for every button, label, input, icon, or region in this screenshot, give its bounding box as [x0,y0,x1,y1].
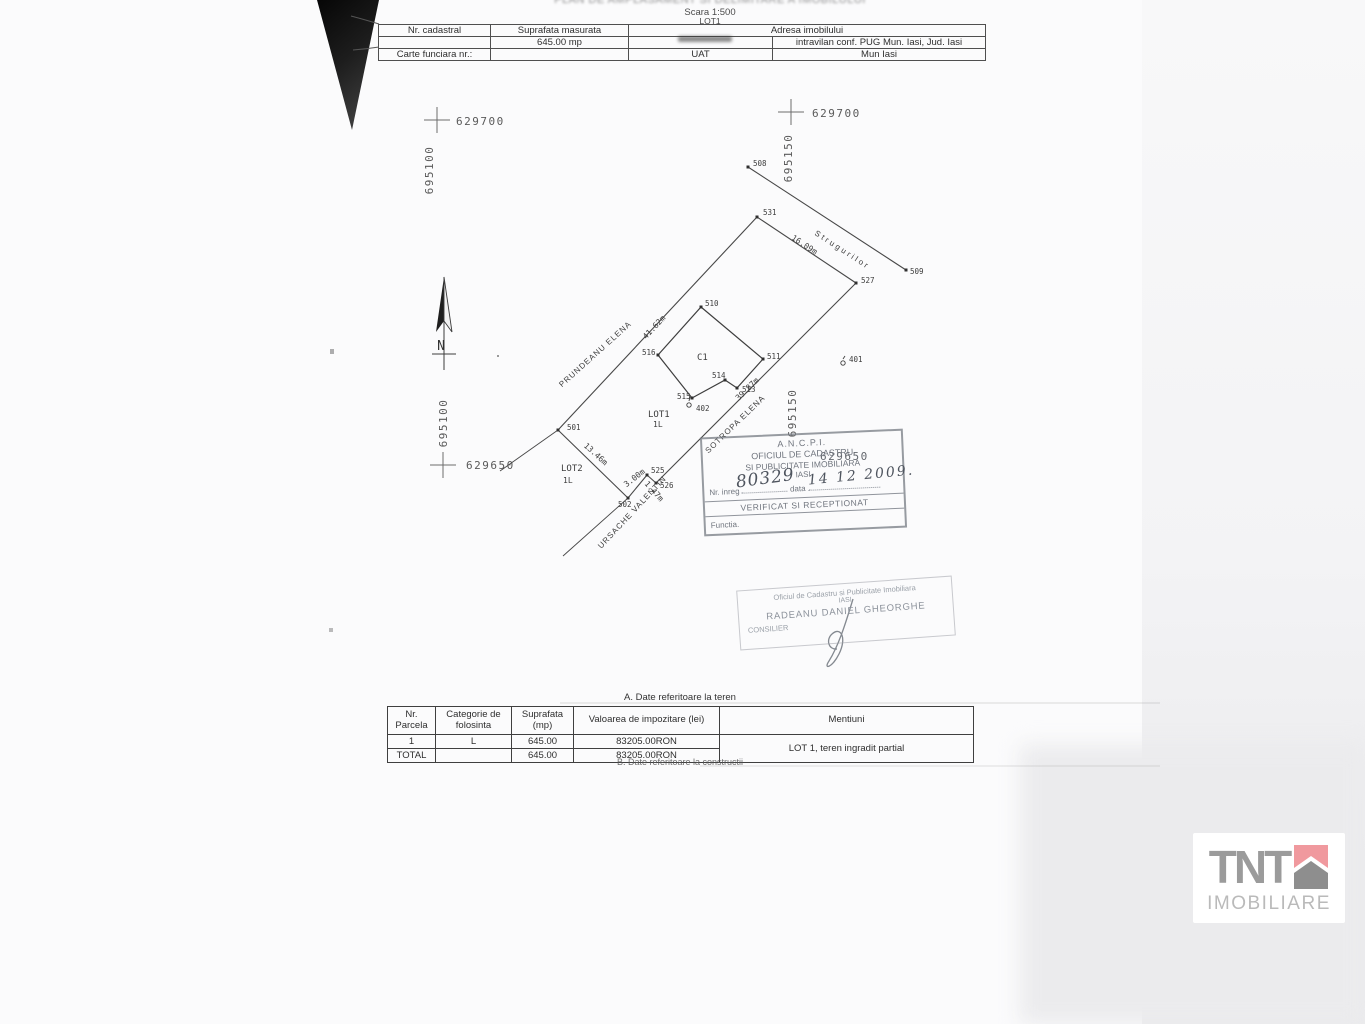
grid-x-mid-left: 629650 [466,459,515,472]
ancpi-stamp: A.N.C.P.I. OFICIUL DE CADASTRU SI PUBLIC… [700,429,907,537]
suprafata-label: Suprafata masurata [491,25,629,37]
grid-x-top-left: 629700 [456,115,505,128]
stamp-nr-label: Nr. inreg [709,487,740,497]
tnt-subtitle-text: IMOBILIARE [1207,894,1331,914]
utility-point-symbols [687,356,845,407]
constructii-caption: B. Date referitoare la constructii [387,757,973,767]
tnt-watermark-card: TNT IMOBILIARE [1193,833,1345,923]
point-514: 514 [712,371,726,380]
point-511: 511 [767,352,781,361]
point-509: 509 [910,267,924,276]
lot2-sub: 1L [563,476,573,485]
col-suprafata: Suprafata (mp) [512,707,574,735]
point-510: 510 [705,299,719,308]
adresa-value: intravilan conf. PUG Mun. Iasi, Jud. Ias… [773,37,986,49]
point-531: 531 [763,208,777,217]
tnt-house-icon [1293,843,1329,891]
lot2-label: LOT2 [561,464,583,474]
grid-cross-top-left [424,107,450,133]
carte-funciara-label: Carte funciara nr.: [379,49,491,61]
neighbor-prundeanu: PRUNDEANU ELENA [557,319,633,389]
nr-cadastral-value [379,37,491,49]
scan-fold-artifact [317,0,379,130]
street-name: Strugurilor [813,229,872,272]
cell-categorie: L [436,735,512,749]
cell-suprafata: 645.00 [512,735,574,749]
north-letter: N [437,339,445,354]
scan-speck-3 [497,355,499,357]
col-mentiuni: Mentiuni [720,707,974,735]
ink-smudge [678,36,732,42]
grid-cross-top-right [778,99,804,125]
scan-speck-2 [329,628,333,632]
teren-table-caption: A. Date referitoare la teren [387,692,973,703]
lot1-label: LOT1 [648,410,670,420]
tnt-brand-text: TNT [1209,843,1289,891]
col-categorie: Categorie de folosinta [436,707,512,735]
point-508: 508 [753,159,767,168]
north-arrow: N [432,277,456,370]
consilier-stamp: Oficiul de Cadastru si Publicitate Imobi… [736,576,956,651]
grid-x-top-right: 629700 [812,107,861,120]
leader-curve-bottom [353,47,379,50]
point-516: 516 [642,348,656,357]
point-515: 515 [677,392,691,401]
dim-39-87: 39.87m [734,376,761,403]
street-line [748,167,906,270]
point-513: 513 [742,385,756,394]
dim-1-47: 1.47m [642,479,665,503]
leader-curve-top [351,16,379,24]
grid-y-mid-left: 695100 [437,399,450,448]
uat-label: UAT [629,49,773,61]
building-label: C1 [697,353,708,363]
cadastral-header-table: Nr. cadastral Suprafata masurata Adresa … [378,24,986,61]
col-valoarea: Valoarea de impozitare (lei) [574,707,720,735]
stamp-date-label: data [790,484,806,494]
point-501: 501 [567,423,581,432]
neighbor-ursache: URSACHE VALENTIN [596,474,668,550]
point-525: 525 [651,466,665,475]
building-outline [658,307,763,398]
dim-16-09: 16.09m [790,233,819,256]
grid-y-top-left: 695100 [423,146,436,195]
uat-value: Mun Iasi [773,49,986,61]
cell-valoarea: 83205.00RON [574,735,720,749]
dim-41-62: 41.62m [641,314,667,341]
grid-y-mid-right: 695150 [786,389,799,438]
point-526: 526 [660,481,674,490]
cell-nr: 1 [388,735,436,749]
scan-speck-1 [330,349,334,354]
point-502: 502 [618,500,632,509]
dim-3-00: 3.00m [622,467,647,489]
lot1-sub: 1L [653,420,663,429]
adresa-label: Adresa imobilului [629,25,986,37]
scanned-cadastral-document: { "page": { "title_fragment": "PLAN DE A… [0,0,1365,1024]
grid-cross-mid-left [430,452,456,478]
point-402: 402 [696,404,710,413]
grid-y-top-right: 695150 [782,134,795,183]
suprafata-value: 645.00 mp [491,37,629,49]
col-nr-parcela: Nr. Parcela [388,707,436,735]
teren-table: Nr. Parcela Categorie de folosinta Supra… [387,706,974,763]
carte-funciara-value [491,49,629,61]
nr-cadastral-label: Nr. cadastral [379,25,491,37]
dim-13-46: 13.46m [582,441,610,467]
plan-title-fragment: PLAN DE AMPLASAMENT SI DELIMITARE A IMOB… [540,0,880,6]
point-401: 401 [849,355,863,364]
table-row: 1 L 645.00 83205.00RON LOT 1, teren ingr… [388,735,974,749]
point-527: 527 [861,276,875,285]
